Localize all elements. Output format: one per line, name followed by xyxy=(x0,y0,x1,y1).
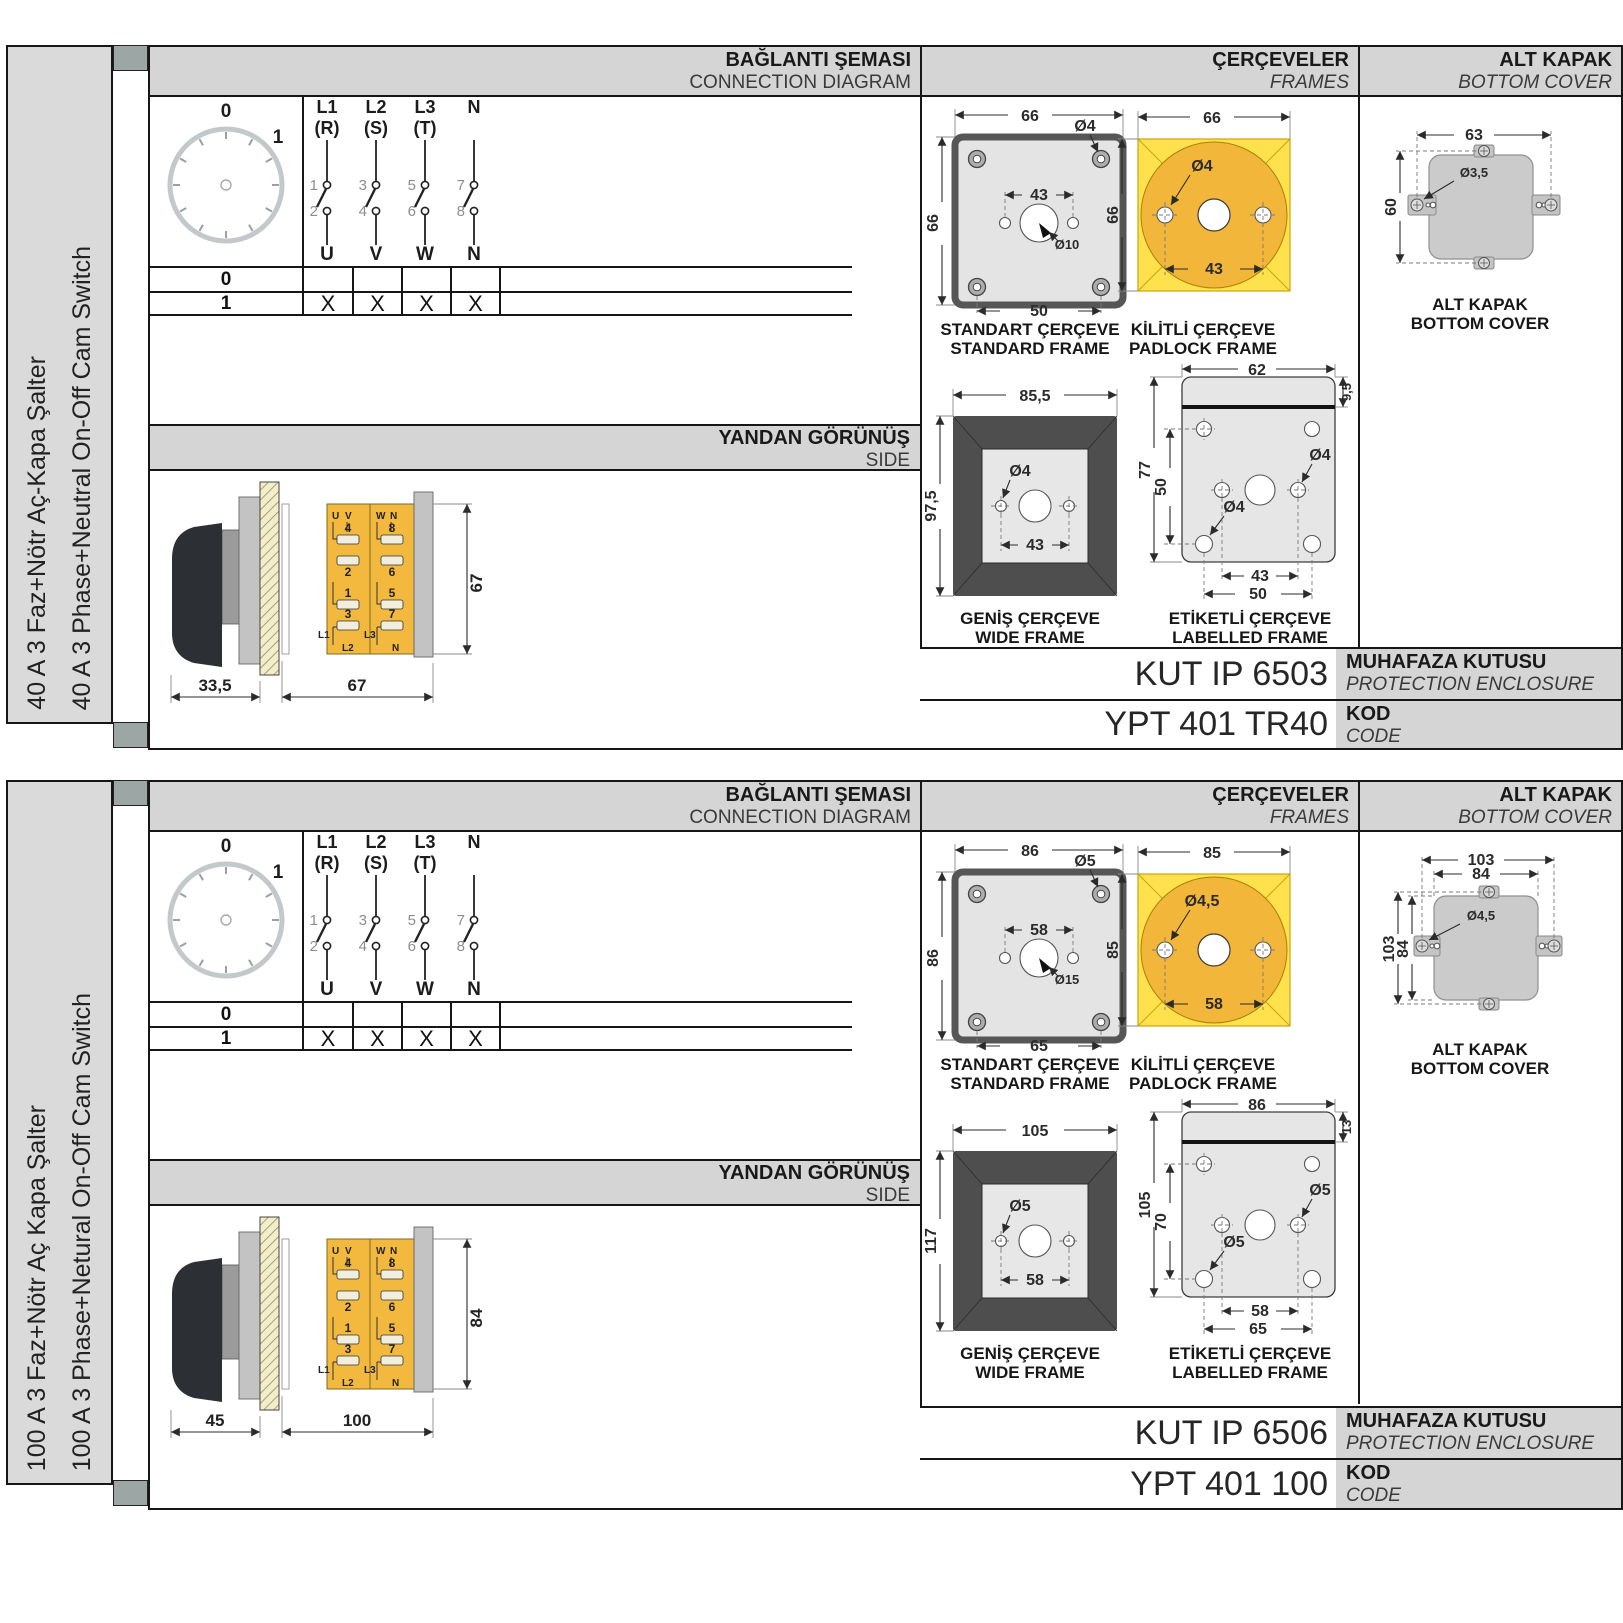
svg-text:Ø5: Ø5 xyxy=(1309,1182,1330,1199)
contact-pole-3: L3 (T) 5 6 W xyxy=(408,97,437,265)
contact-pole-1: L1 (R) 1 2 U xyxy=(310,832,340,1000)
svg-text:117: 117 xyxy=(923,1228,940,1254)
svg-text:5: 5 xyxy=(408,912,416,929)
cam-switch-side-view: U V W N 4 2 1 3 8 6 5 7 L1 L2 L3 N 84 xyxy=(166,1210,506,1452)
contact-diagram: L1 (R) 1 2 U L2 (S) 3 4 V L3 ( xyxy=(304,832,904,1001)
svg-text:6: 6 xyxy=(408,938,416,955)
svg-text:7: 7 xyxy=(389,1342,396,1356)
dial-position-1: 1 xyxy=(273,862,284,883)
switch-dial-drawing: 0 1 xyxy=(150,97,304,266)
svg-text:L1: L1 xyxy=(318,630,330,641)
section-tab-top xyxy=(113,45,148,71)
section-tab-bottom xyxy=(113,722,148,748)
padlock-frame-caption: KİLİTLİ ÇERÇEVE PADLOCK FRAME xyxy=(1103,320,1303,358)
svg-text:Ø15: Ø15 xyxy=(1055,972,1080,987)
svg-text:77: 77 xyxy=(1137,461,1154,479)
svg-text:3: 3 xyxy=(345,607,352,621)
dim-body-width: 100 xyxy=(343,1411,371,1430)
svg-text:50: 50 xyxy=(1249,586,1267,603)
padlock-frame-drawing: Ø4 66 66 43 xyxy=(1110,99,1296,317)
svg-text:84: 84 xyxy=(1395,940,1412,958)
padlock-frame-drawing: Ø4,5 85 85 58 xyxy=(1110,834,1296,1052)
datasheet-panel: BAĞLANTI ŞEMASI CONNECTION DIAGRAM ÇERÇE… xyxy=(148,780,1623,1510)
svg-text:7: 7 xyxy=(389,607,396,621)
svg-text:105: 105 xyxy=(1022,1123,1049,1140)
product-title-en: 40 A 3 Phase+Neutral On-Off Cam Switch xyxy=(68,246,97,710)
svg-text:(R): (R) xyxy=(315,118,340,138)
header-bottom-cover: ALT KAPAK BOTTOM COVER xyxy=(1358,782,1621,830)
svg-text:U: U xyxy=(332,511,339,522)
svg-text:N: N xyxy=(467,979,481,1000)
svg-text:3: 3 xyxy=(345,1342,352,1356)
svg-text:L3: L3 xyxy=(364,1365,376,1376)
enclosure-code: KUT IP 6506 xyxy=(920,1406,1336,1458)
svg-text:N: N xyxy=(467,244,481,265)
contact-pole-3: L3 (T) 5 6 W xyxy=(408,832,437,1000)
wide-frame-drawing: Ø4 85,5 97,5 43 xyxy=(930,379,1130,607)
table-row-label: 1 xyxy=(150,1026,302,1049)
table-mark: X xyxy=(450,291,499,314)
header-connection-diagram: BAĞLANTI ŞEMASI CONNECTION DIAGRAM xyxy=(150,47,920,95)
svg-text:Ø4,5: Ø4,5 xyxy=(1467,908,1495,923)
enclosure-code: KUT IP 6503 xyxy=(920,647,1336,699)
dim-body-height: 84 xyxy=(467,1308,486,1327)
svg-text:4: 4 xyxy=(345,1256,352,1270)
svg-text:50: 50 xyxy=(1030,303,1048,320)
svg-text:65: 65 xyxy=(1249,1321,1267,1338)
svg-text:(T): (T) xyxy=(414,118,437,138)
svg-text:U: U xyxy=(320,244,334,265)
svg-text:84: 84 xyxy=(1472,866,1490,883)
svg-text:Ø4: Ø4 xyxy=(1191,158,1212,175)
table-row-label: 0 xyxy=(150,268,302,291)
svg-text:13: 13 xyxy=(1339,1120,1354,1134)
svg-text:70: 70 xyxy=(1153,1213,1170,1231)
svg-text:66: 66 xyxy=(1021,108,1039,125)
svg-text:L2: L2 xyxy=(365,97,386,117)
table-mark: X xyxy=(401,291,450,314)
svg-text:4: 4 xyxy=(359,203,367,220)
svg-text:58: 58 xyxy=(1030,922,1048,939)
contact-diagram: L1 (R) 1 2 U L2 (S) 3 4 V L3 ( xyxy=(304,97,904,266)
svg-text:W: W xyxy=(376,1246,386,1257)
svg-text:7: 7 xyxy=(457,177,465,194)
padlock-frame-caption: KİLİTLİ ÇERÇEVE PADLOCK FRAME xyxy=(1103,1055,1303,1093)
dim-body-height: 67 xyxy=(467,574,486,593)
svg-text:2: 2 xyxy=(345,565,352,579)
svg-text:97,5: 97,5 xyxy=(923,490,940,521)
svg-text:6: 6 xyxy=(408,203,416,220)
svg-text:W: W xyxy=(376,511,386,522)
product-title-en: 100 A 3 Phase+Netural On-Off Cam Switch xyxy=(68,993,97,1471)
svg-text:86: 86 xyxy=(1248,1097,1266,1114)
svg-text:58: 58 xyxy=(1026,1272,1044,1289)
svg-text:65: 65 xyxy=(1030,1038,1048,1055)
standard-frame-caption: STANDART ÇERÇEVE STANDARD FRAME xyxy=(930,320,1130,358)
switch-dial-drawing: 0 1 xyxy=(150,832,304,1001)
svg-text:62: 62 xyxy=(1248,362,1266,379)
enclosure-code-label: MUHAFAZA KUTUSU PROTECTION ENCLOSURE xyxy=(1336,1406,1621,1458)
svg-text:58: 58 xyxy=(1251,1303,1269,1320)
enclosure-code-label: MUHAFAZA KUTUSU PROTECTION ENCLOSURE xyxy=(1336,647,1621,699)
switching-table: 0 1 X X X X xyxy=(150,266,852,316)
svg-text:66: 66 xyxy=(1105,206,1122,224)
product-section-100a: 100 A 3 Faz+Nötr Aç Kapa Şalter 100 A 3 … xyxy=(0,780,1623,1510)
svg-text:W: W xyxy=(416,979,434,1000)
contact-pole-1: L1 (R) 1 2 U xyxy=(310,97,340,265)
standard-frame-caption: STANDART ÇERÇEVE STANDARD FRAME xyxy=(930,1055,1130,1093)
svg-text:Ø4: Ø4 xyxy=(1223,499,1244,516)
svg-text:2: 2 xyxy=(345,1300,352,1314)
svg-text:Ø4: Ø4 xyxy=(1074,118,1095,135)
contact-pole-4: N 7 8 N xyxy=(457,832,481,1000)
standard-frame-drawing: 66 Ø4 66 43 Ø10 50 xyxy=(930,97,1130,319)
datasheet-panel: BAĞLANTI ŞEMASI CONNECTION DIAGRAM ÇERÇE… xyxy=(148,45,1623,750)
svg-text:2: 2 xyxy=(310,938,318,955)
svg-text:8: 8 xyxy=(457,203,465,220)
svg-text:V: V xyxy=(370,244,383,265)
svg-text:4: 4 xyxy=(359,938,367,955)
section-tab-top xyxy=(113,780,148,806)
contact-pole-4: N 7 8 N xyxy=(457,97,481,265)
side-view-header: YANDAN GÖRÜNÜŞ SIDE xyxy=(150,424,920,471)
svg-text:3: 3 xyxy=(359,912,367,929)
svg-text:N: N xyxy=(468,832,481,852)
bottom-cover-drawing: 63 60 Ø3,5 xyxy=(1386,125,1574,287)
table-mark: X xyxy=(401,1026,450,1049)
svg-text:5: 5 xyxy=(389,586,396,600)
product-sidebar: 40 A 3 Faz+Nötr Aç-Kapa Şalter 40 A 3 Ph… xyxy=(6,45,113,724)
svg-text:1: 1 xyxy=(345,586,352,600)
bottom-cover-caption: ALT KAPAK BOTTOM COVER xyxy=(1390,1040,1570,1078)
switch-handle xyxy=(172,1258,222,1402)
product-title-tr: 40 A 3 Faz+Nötr Aç-Kapa Şalter xyxy=(23,356,52,710)
svg-text:86: 86 xyxy=(925,949,942,967)
svg-text:5: 5 xyxy=(408,177,416,194)
cam-switch-side-view: U V W N 4 2 1 3 8 6 5 7 L1 L2 L3 N 67 xyxy=(166,475,506,717)
labelled-frame-drawing: 62 9,5 77 50 Ø4 Ø4 43 50 xyxy=(1140,360,1355,607)
dim-handle-depth: 45 xyxy=(206,1411,225,1430)
svg-text:85: 85 xyxy=(1203,845,1221,862)
svg-text:L3: L3 xyxy=(414,832,435,852)
svg-text:50: 50 xyxy=(1153,478,1170,496)
svg-text:43: 43 xyxy=(1205,261,1223,278)
product-code-label: KOD CODE xyxy=(1336,1458,1621,1508)
svg-text:105: 105 xyxy=(1137,1192,1154,1219)
svg-text:Ø4,5: Ø4,5 xyxy=(1185,893,1220,910)
svg-text:U: U xyxy=(332,1246,339,1257)
svg-text:L1: L1 xyxy=(318,1365,330,1376)
svg-text:Ø5: Ø5 xyxy=(1074,853,1095,870)
svg-text:1: 1 xyxy=(310,177,318,194)
svg-text:6: 6 xyxy=(389,1300,396,1314)
svg-text:N: N xyxy=(392,643,399,654)
dim-body-width: 67 xyxy=(348,676,367,695)
switch-handle xyxy=(172,523,222,667)
wide-frame-caption: GENİŞ ÇERÇEVE WIDE FRAME xyxy=(930,1344,1130,1382)
svg-text:63: 63 xyxy=(1465,127,1483,144)
product-code: YPT 401 TR40 xyxy=(920,699,1336,748)
svg-text:60: 60 xyxy=(1383,198,1400,216)
product-section-40a: 40 A 3 Faz+Nötr Aç-Kapa Şalter 40 A 3 Ph… xyxy=(0,45,1623,750)
bottom-cover-caption: ALT KAPAK BOTTOM COVER xyxy=(1390,295,1570,333)
switching-table: 0 1 X X X X xyxy=(150,1001,852,1051)
table-mark: X xyxy=(450,1026,499,1049)
svg-text:4: 4 xyxy=(345,521,352,535)
svg-text:Ø5: Ø5 xyxy=(1223,1234,1244,1251)
svg-text:(S): (S) xyxy=(364,853,388,873)
svg-text:9,5: 9,5 xyxy=(1339,383,1354,401)
svg-text:1: 1 xyxy=(310,912,318,929)
labelled-frame-caption: ETİKETLİ ÇERÇEVE LABELLED FRAME xyxy=(1145,609,1355,647)
column-divider-2 xyxy=(1358,832,1360,1404)
svg-text:L2: L2 xyxy=(365,832,386,852)
svg-text:V: V xyxy=(370,979,383,1000)
svg-text:3: 3 xyxy=(359,177,367,194)
svg-text:1: 1 xyxy=(345,1321,352,1335)
table-row-label: 1 xyxy=(150,291,302,314)
standard-frame-drawing: 86 Ø5 86 58 Ø15 65 xyxy=(930,832,1130,1054)
table-mark: X xyxy=(352,1026,401,1049)
svg-text:7: 7 xyxy=(457,912,465,929)
column-headers: BAĞLANTI ŞEMASI CONNECTION DIAGRAM ÇERÇE… xyxy=(150,782,1621,832)
svg-text:43: 43 xyxy=(1030,187,1048,204)
column-headers: BAĞLANTI ŞEMASI CONNECTION DIAGRAM ÇERÇE… xyxy=(150,47,1621,97)
svg-text:8: 8 xyxy=(389,1256,396,1270)
mounting-plate-hatched xyxy=(260,1217,279,1410)
svg-text:58: 58 xyxy=(1205,996,1223,1013)
wide-frame-drawing: Ø5 105 117 58 xyxy=(930,1114,1130,1342)
section-tab-bottom xyxy=(113,1480,148,1506)
svg-text:(R): (R) xyxy=(315,853,340,873)
table-mark: X xyxy=(302,1026,352,1049)
svg-text:(T): (T) xyxy=(414,853,437,873)
dial-position-0: 0 xyxy=(221,101,232,122)
svg-text:85,5: 85,5 xyxy=(1019,388,1050,405)
header-bottom-cover: ALT KAPAK BOTTOM COVER xyxy=(1358,47,1621,95)
header-frames: ÇERÇEVELER FRAMES xyxy=(920,782,1358,830)
svg-text:Ø3,5: Ø3,5 xyxy=(1460,165,1488,180)
header-frames: ÇERÇEVELER FRAMES xyxy=(920,47,1358,95)
bottom-cover-drawing: 103 84 103 84 Ø4,5 xyxy=(1386,854,1574,1034)
svg-text:L1: L1 xyxy=(316,832,337,852)
svg-text:L2: L2 xyxy=(342,643,354,654)
contact-pole-2: L2 (S) 3 4 V xyxy=(359,97,388,265)
table-row-label: 0 xyxy=(150,1003,302,1026)
svg-text:N: N xyxy=(392,1378,399,1389)
column-divider-2 xyxy=(1358,97,1360,647)
dial-position-1: 1 xyxy=(273,127,284,148)
svg-text:66: 66 xyxy=(925,214,942,232)
side-view-header: YANDAN GÖRÜNÜŞ SIDE xyxy=(150,1159,920,1206)
header-connection-diagram: BAĞLANTI ŞEMASI CONNECTION DIAGRAM xyxy=(150,782,920,830)
svg-text:L3: L3 xyxy=(364,630,376,641)
dim-handle-depth: 33,5 xyxy=(198,676,231,695)
svg-text:85: 85 xyxy=(1105,941,1122,959)
svg-text:43: 43 xyxy=(1026,537,1044,554)
product-code-label: KOD CODE xyxy=(1336,699,1621,748)
svg-text:66: 66 xyxy=(1203,110,1221,127)
svg-text:U: U xyxy=(320,979,334,1000)
svg-text:L1: L1 xyxy=(316,97,337,117)
svg-text:L3: L3 xyxy=(414,97,435,117)
svg-text:L2: L2 xyxy=(342,1378,354,1389)
svg-text:(S): (S) xyxy=(364,118,388,138)
svg-text:86: 86 xyxy=(1021,843,1039,860)
svg-text:8: 8 xyxy=(457,938,465,955)
svg-text:Ø4: Ø4 xyxy=(1009,463,1030,480)
mounting-plate-hatched xyxy=(260,482,279,675)
svg-text:43: 43 xyxy=(1251,568,1269,585)
product-title-tr: 100 A 3 Faz+Nötr Aç Kapa Şalter xyxy=(23,1105,52,1471)
svg-text:6: 6 xyxy=(389,565,396,579)
wide-frame-caption: GENİŞ ÇERÇEVE WIDE FRAME xyxy=(930,609,1130,647)
svg-text:8: 8 xyxy=(389,521,396,535)
dial-position-0: 0 xyxy=(221,836,232,857)
svg-text:2: 2 xyxy=(310,203,318,220)
svg-text:N: N xyxy=(468,97,481,117)
table-mark: X xyxy=(352,291,401,314)
svg-text:Ø4: Ø4 xyxy=(1309,447,1330,464)
labelled-frame-drawing: 86 13 105 70 Ø5 Ø5 58 65 xyxy=(1140,1095,1355,1342)
labelled-frame-caption: ETİKETLİ ÇERÇEVE LABELLED FRAME xyxy=(1145,1344,1355,1382)
product-sidebar: 100 A 3 Faz+Nötr Aç Kapa Şalter 100 A 3 … xyxy=(6,780,113,1485)
svg-text:5: 5 xyxy=(389,1321,396,1335)
contact-pole-2: L2 (S) 3 4 V xyxy=(359,832,388,1000)
product-code: YPT 401 100 xyxy=(920,1458,1336,1508)
table-mark: X xyxy=(302,291,352,314)
svg-text:Ø10: Ø10 xyxy=(1055,237,1080,252)
svg-text:W: W xyxy=(416,244,434,265)
svg-text:Ø5: Ø5 xyxy=(1009,1198,1030,1215)
